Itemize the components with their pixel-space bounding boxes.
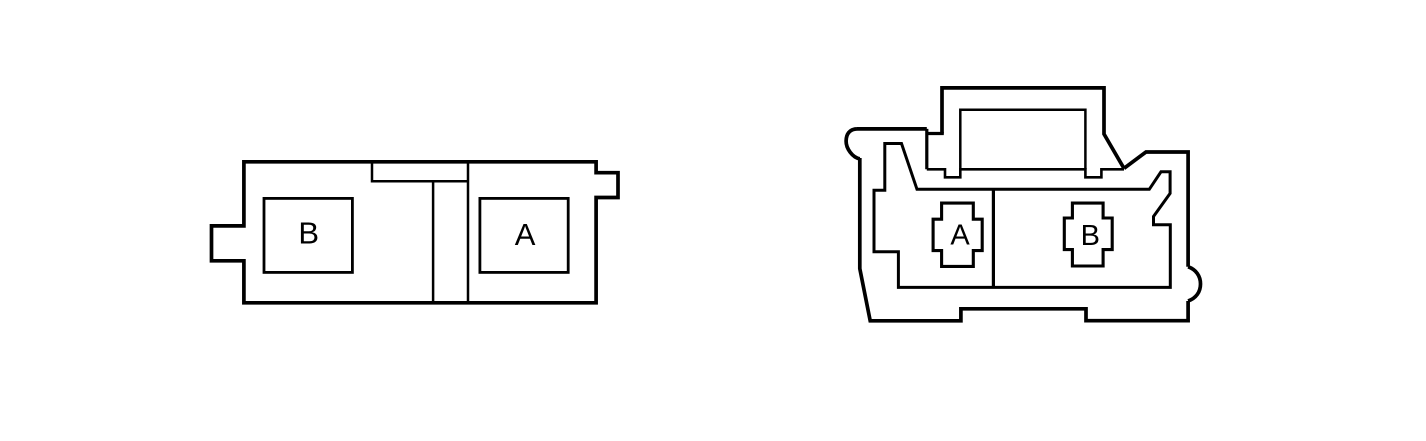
svg-text:A: A: [950, 220, 970, 252]
svg-text:B: B: [298, 216, 319, 251]
svg-text:A: A: [515, 217, 536, 252]
svg-text:B: B: [1081, 220, 1100, 252]
